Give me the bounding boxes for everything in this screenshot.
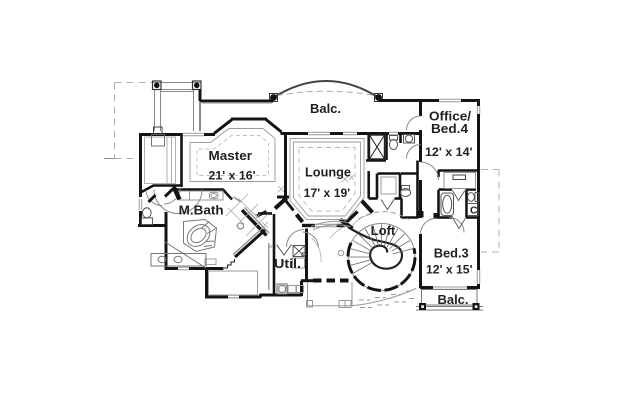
svg-text:Master: Master	[209, 148, 253, 163]
svg-text:Balc.: Balc.	[438, 292, 469, 307]
svg-text:17' x 19': 17' x 19'	[304, 188, 351, 200]
svg-text:Bed.4: Bed.4	[431, 121, 469, 136]
svg-text:Bed.3: Bed.3	[434, 246, 469, 261]
svg-text:Loft: Loft	[371, 223, 396, 238]
svg-text:12' x 15': 12' x 15'	[426, 265, 473, 277]
svg-text:Util.: Util.	[274, 256, 301, 271]
svg-text:Lounge: Lounge	[305, 165, 351, 180]
svg-text:M.Bath: M.Bath	[179, 203, 224, 218]
svg-text:Balc.: Balc.	[310, 101, 341, 116]
svg-text:21' x 16': 21' x 16'	[209, 171, 256, 183]
svg-text:C: C	[470, 205, 478, 217]
svg-text:12' x 14': 12' x 14'	[425, 147, 473, 159]
